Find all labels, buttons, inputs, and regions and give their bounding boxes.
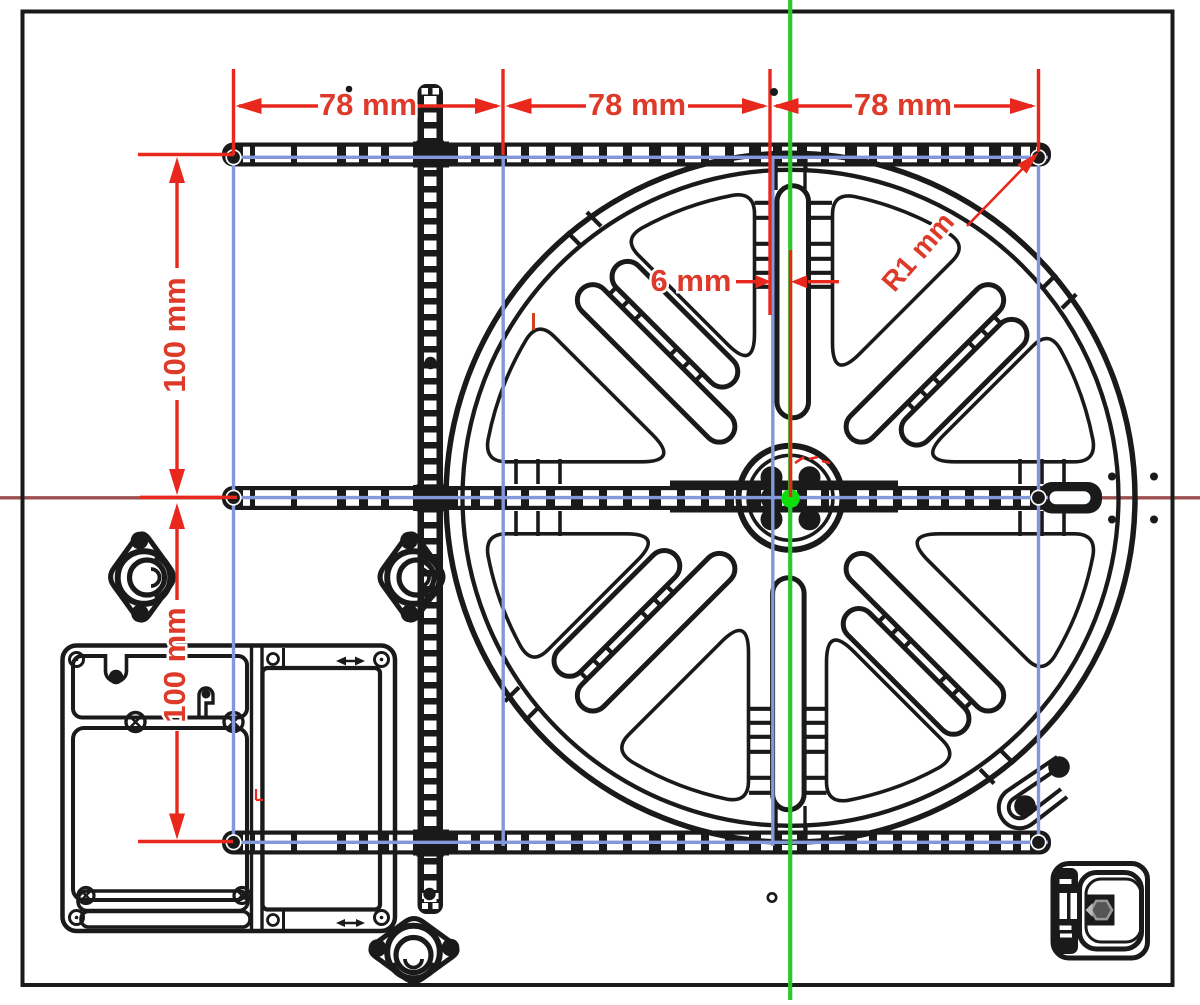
svg-text:78 mm: 78 mm — [854, 87, 952, 122]
svg-text:100 mm: 100 mm — [157, 607, 192, 722]
svg-text:78 mm: 78 mm — [319, 87, 417, 122]
svg-text:78 mm: 78 mm — [588, 87, 686, 122]
svg-text:100 mm: 100 mm — [157, 277, 192, 392]
svg-text:6 mm: 6 mm — [651, 263, 732, 298]
